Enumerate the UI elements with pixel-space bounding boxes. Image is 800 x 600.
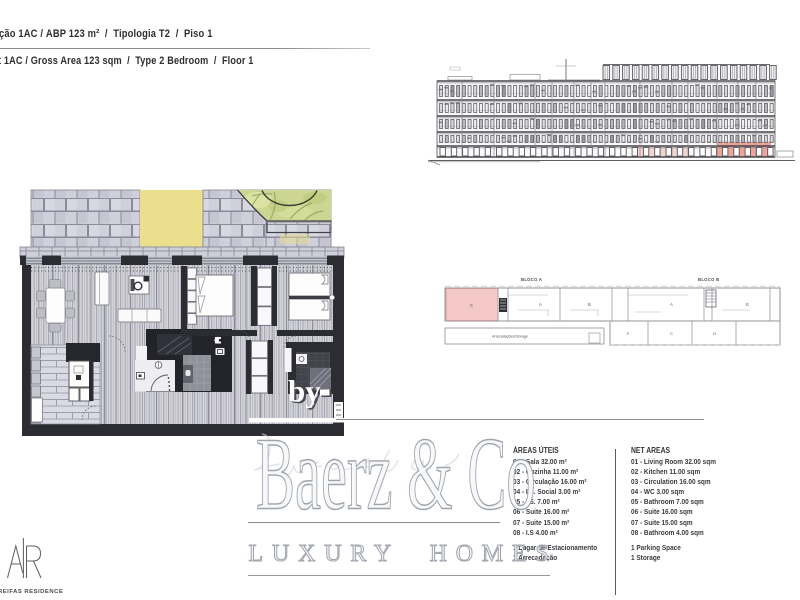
svg-text:BLOCO B: BLOCO B	[698, 277, 719, 282]
svg-text:A: A	[670, 302, 673, 307]
svg-text:A: A	[539, 302, 542, 307]
svg-text:Arrecadações/Storage: Arrecadações/Storage	[492, 335, 528, 339]
svg-text:C: C	[470, 303, 473, 308]
svg-text:BLOCO A: BLOCO A	[521, 277, 542, 282]
svg-text:C: C	[670, 331, 673, 336]
svg-text:B: B	[588, 302, 591, 307]
svg-text:E: E	[746, 302, 749, 307]
svg-text:D: D	[713, 331, 716, 336]
